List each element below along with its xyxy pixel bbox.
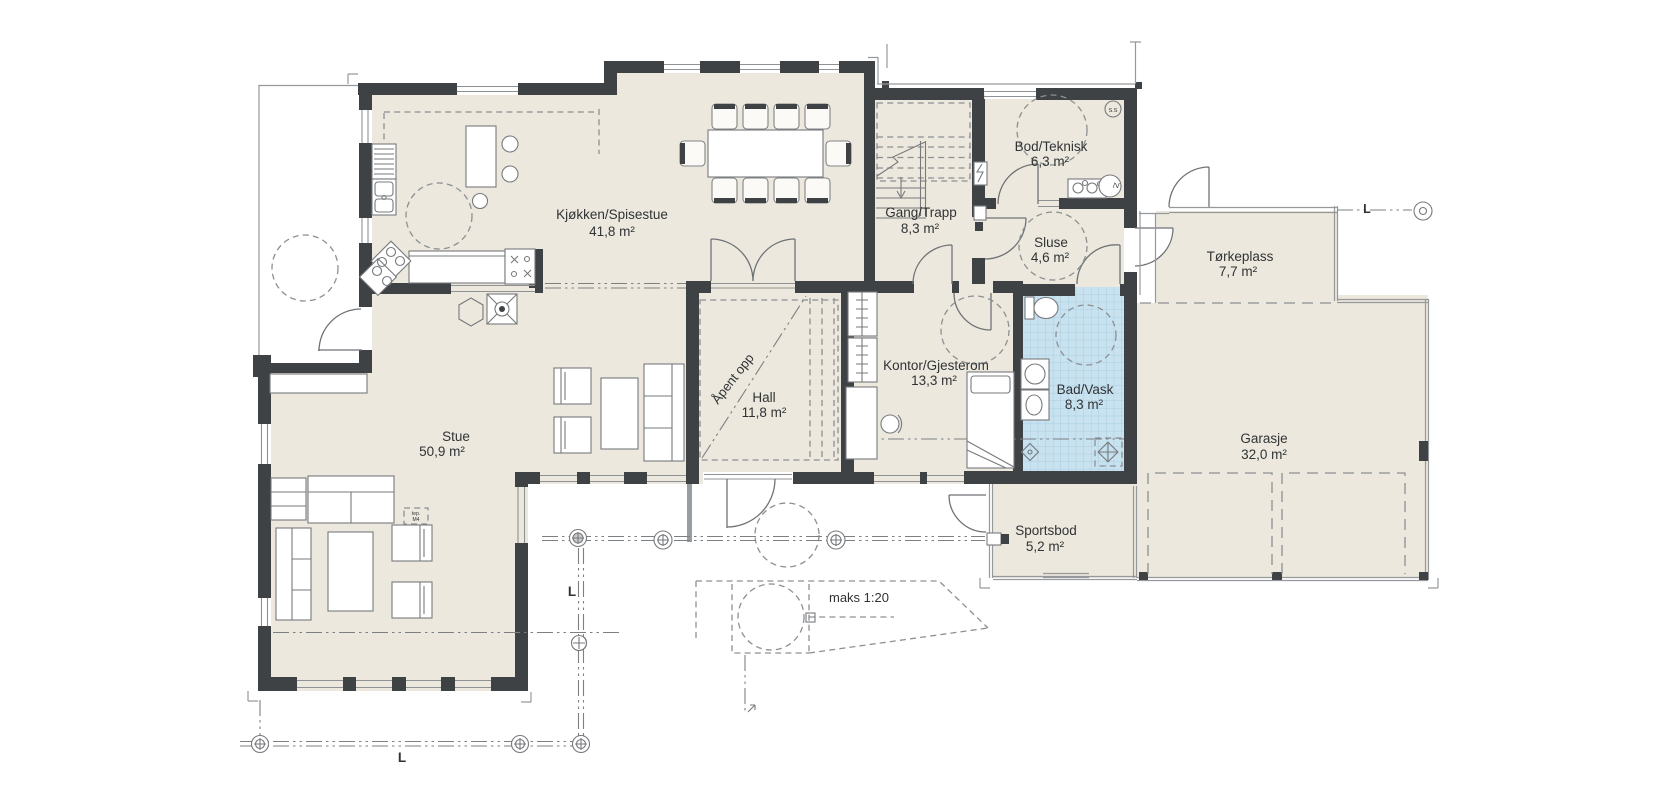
- svg-text:Bad/Vask: Bad/Vask: [1057, 382, 1114, 397]
- svg-text:41,8 m²: 41,8 m²: [589, 224, 635, 239]
- svg-text:50,9 m²: 50,9 m²: [419, 444, 465, 459]
- svg-text:L: L: [1363, 202, 1371, 216]
- svg-text:L: L: [568, 584, 576, 599]
- svg-text:Bod/Teknisk: Bod/Teknisk: [1015, 139, 1088, 154]
- svg-text:Tørkeplass: Tørkeplass: [1207, 249, 1274, 264]
- svg-text:8,3 m²: 8,3 m²: [901, 221, 940, 236]
- svg-text:5,2 m²: 5,2 m²: [1026, 539, 1065, 554]
- svg-text:4,6 m²: 4,6 m²: [1031, 250, 1070, 265]
- svg-text:maks 1:20: maks 1:20: [829, 590, 889, 605]
- svg-text:32,0 m²: 32,0 m²: [1241, 447, 1287, 462]
- svg-text:Kontor/Gjesterom: Kontor/Gjesterom: [883, 358, 989, 373]
- svg-text:Sportsbod: Sportsbod: [1015, 523, 1077, 538]
- svg-text:M4: M4: [413, 517, 420, 523]
- svg-text:/V: /V: [1113, 183, 1120, 190]
- svg-text:Kjøkken/Spisestue: Kjøkken/Spisestue: [556, 207, 668, 222]
- svg-text:11,8 m²: 11,8 m²: [742, 405, 787, 420]
- svg-text:7,7 m²: 7,7 m²: [1219, 264, 1258, 279]
- svg-text:S.S: S.S: [1109, 108, 1118, 114]
- svg-text:Gang/Trapp: Gang/Trapp: [885, 205, 957, 220]
- svg-text:Hall: Hall: [752, 390, 775, 405]
- svg-text:Stue: Stue: [442, 429, 470, 444]
- svg-text:Sluse: Sluse: [1034, 235, 1068, 250]
- svg-text:8,3 m²: 8,3 m²: [1065, 397, 1104, 412]
- svg-text:Garasje: Garasje: [1240, 431, 1287, 446]
- svg-text:L: L: [398, 750, 406, 765]
- svg-text:13,3 m²: 13,3 m²: [911, 373, 957, 388]
- svg-text:6,3 m²: 6,3 m²: [1031, 154, 1070, 169]
